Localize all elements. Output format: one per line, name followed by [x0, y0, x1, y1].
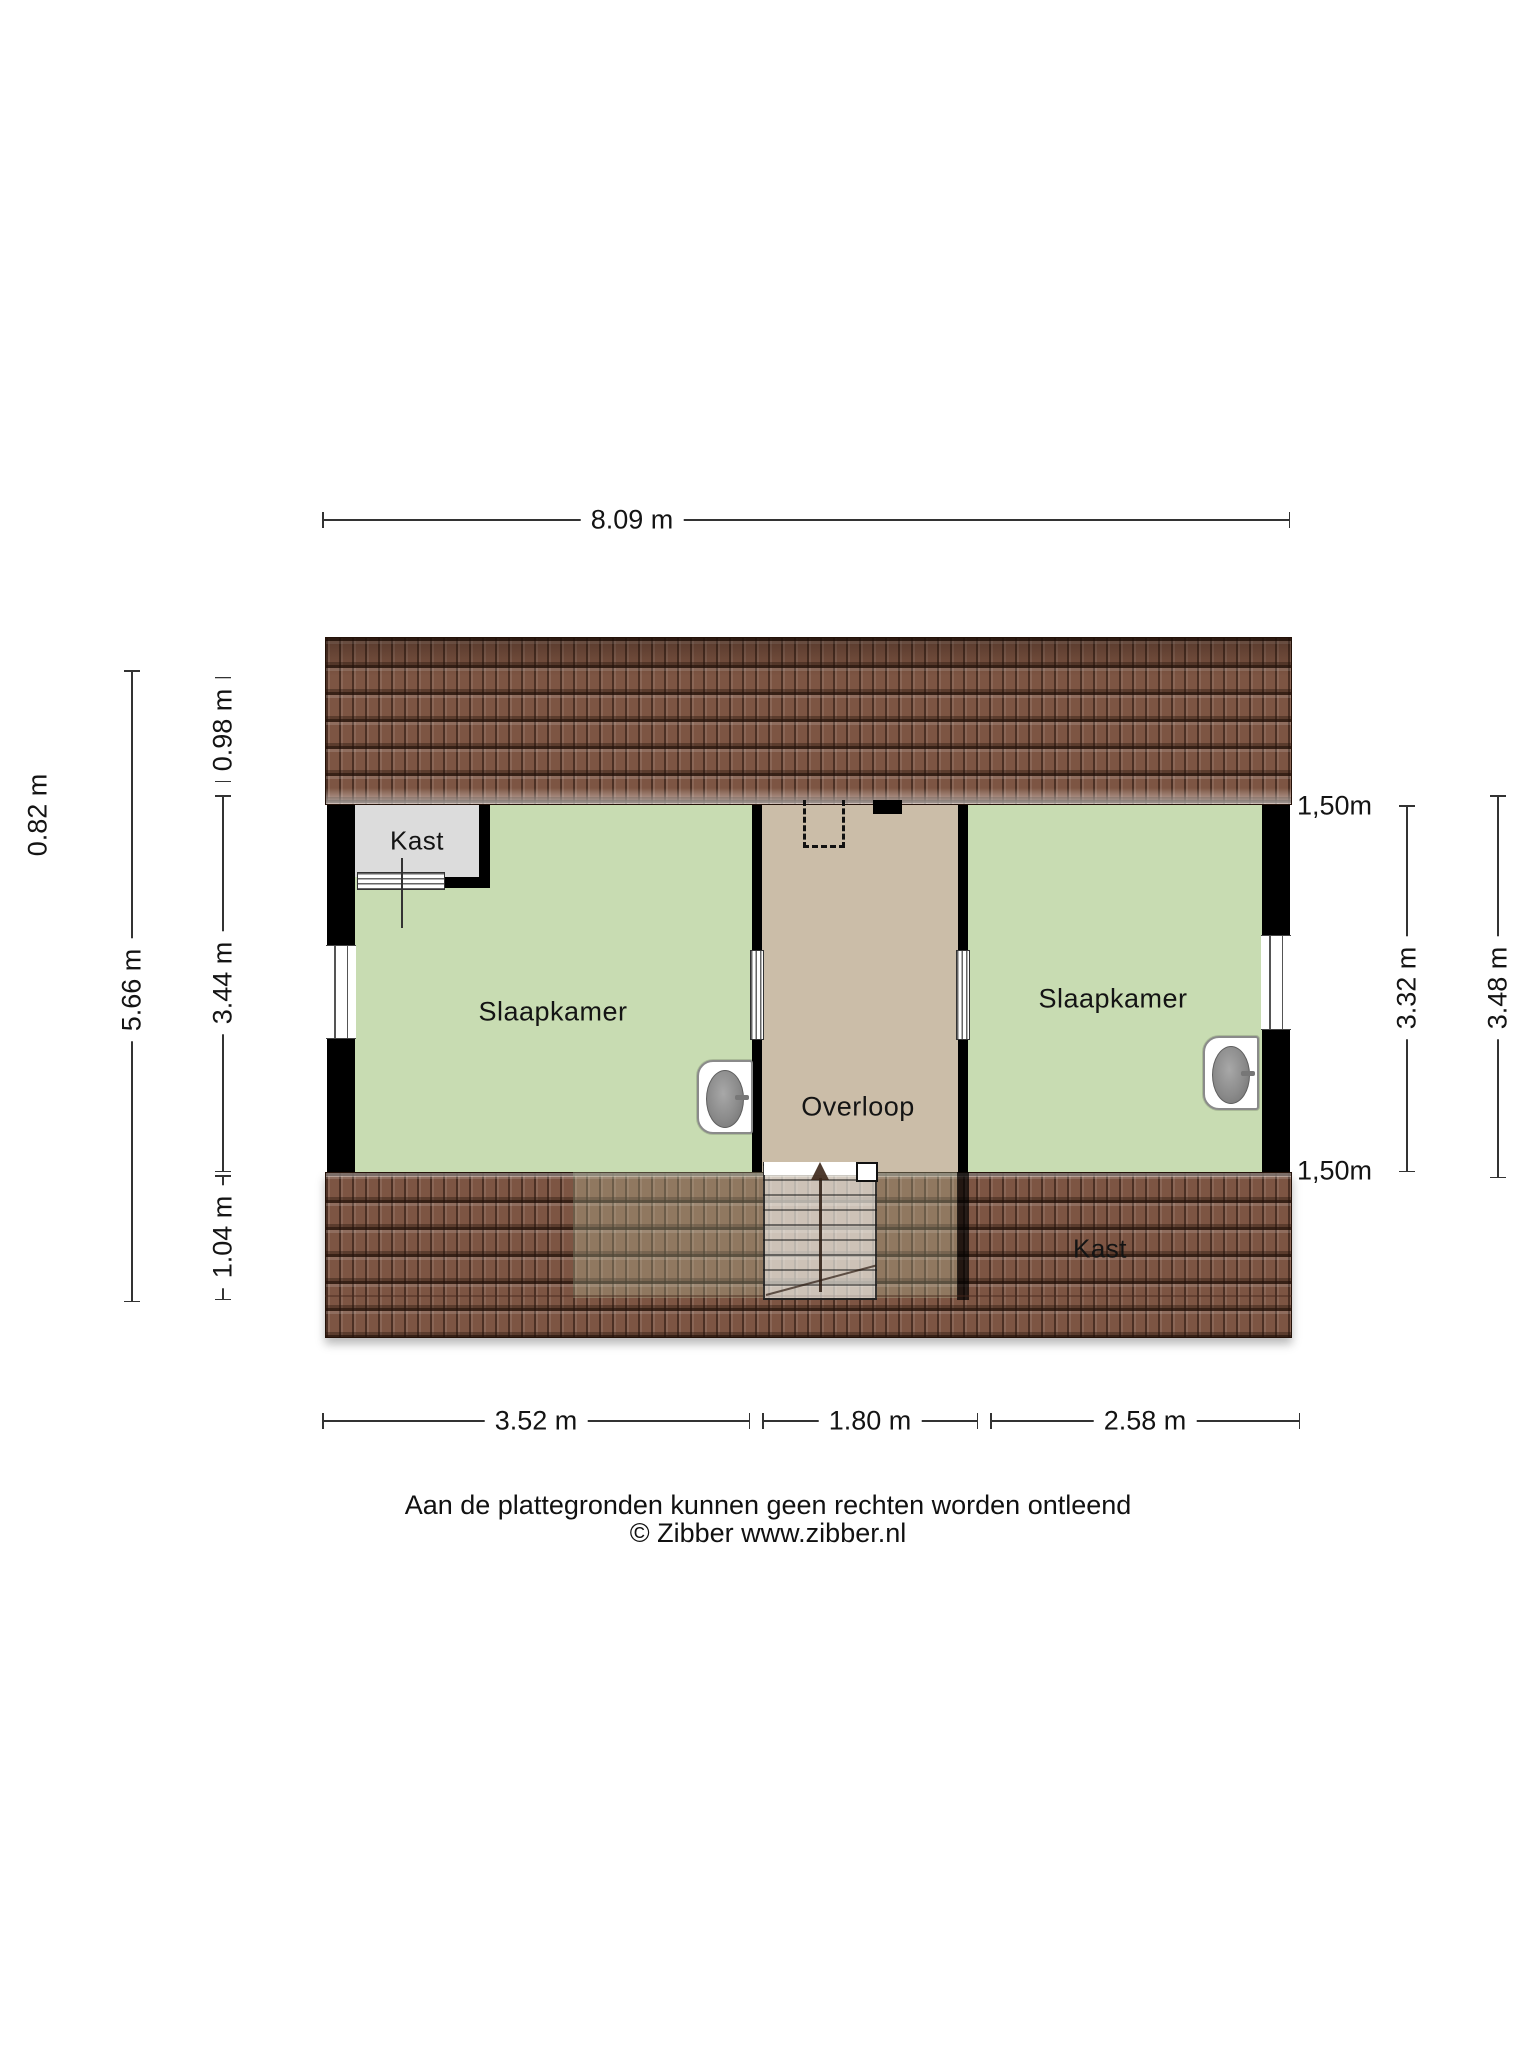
dimension-line-bottom-left: 3.52 m: [322, 1420, 750, 1422]
dimension-label-left-outer: 0.82 m: [23, 774, 54, 857]
dimension-line-left-middle: 3.44 m: [222, 795, 224, 1172]
stair-direction-line: [819, 1178, 822, 1292]
room-label-bedroom-right: Slaapkamer: [1038, 984, 1187, 1015]
staircase-landing-box: [856, 1162, 878, 1182]
wall-under-roof: [957, 1172, 969, 1300]
wall-right-lower: [1262, 1028, 1290, 1172]
wall-hallway-left-upper: [752, 805, 762, 950]
dimension-label-top-width: 8.09 m: [581, 505, 684, 536]
dimension-label-bottom-middle: 1.80 m: [819, 1406, 922, 1437]
wall-right-upper: [1262, 805, 1290, 937]
dimension-line-top-width: 8.09 m: [322, 519, 1290, 521]
wall-left-lower: [327, 1037, 355, 1172]
dimension-label-right-outer: 3.48 m: [1483, 937, 1514, 1040]
sink-icon: [697, 1060, 753, 1134]
sink-tap: [1241, 1071, 1255, 1076]
dimension-label-left-bottom: 1.04 m: [208, 1186, 239, 1289]
dimension-label-left-top: 0.98 m: [208, 679, 239, 782]
dimension-line-right-inner: 3.32 m: [1406, 805, 1408, 1172]
closet-door-indicator-line: [401, 858, 403, 928]
door-hallway-right: [956, 950, 970, 1040]
wall-closet-bottom: [443, 877, 490, 888]
wall-closet-right: [479, 805, 490, 888]
room-label-bedroom-left: Slaapkamer: [478, 997, 627, 1028]
door-hallway-left: [750, 950, 764, 1040]
wall-hallway-right-lower: [958, 1040, 968, 1172]
dimension-line-left-top: 0.98 m: [222, 677, 224, 782]
dimension-line-left-total: 5.66 m: [131, 670, 133, 1302]
headroom-label-top: 1,50m: [1297, 791, 1372, 822]
room-label-closet-bottom-right: Kast: [1073, 1234, 1127, 1265]
dimension-line-bottom-right: 2.58 m: [990, 1420, 1300, 1422]
sink-tap: [735, 1095, 749, 1100]
dimension-label-bottom-left: 3.52 m: [485, 1406, 588, 1437]
roof-band-top: [325, 637, 1292, 805]
dimension-line-bottom-middle: 1.80 m: [762, 1420, 978, 1422]
headroom-label-bottom: 1,50m: [1297, 1156, 1372, 1187]
stair-direction-arrow-icon: [811, 1162, 829, 1180]
dimension-line-right-outer: 3.48 m: [1497, 795, 1499, 1178]
floorplan-canvas: 8.09 m Kast Slaapkam: [0, 0, 1536, 2048]
dimension-label-left-middle: 3.44 m: [208, 932, 239, 1035]
sink-icon: [1203, 1036, 1259, 1110]
window-right: [1261, 935, 1291, 1030]
disclaimer-text: Aan de plattegronden kunnen geen rechten…: [405, 1490, 1132, 1521]
dimension-label-right-inner: 3.32 m: [1392, 937, 1423, 1040]
chimney: [873, 800, 902, 814]
wall-hallway-right-upper: [958, 805, 968, 950]
dimension-line-left-bottom: 1.04 m: [222, 1175, 224, 1300]
room-label-hallway: Overloop: [801, 1092, 915, 1123]
wall-hallway-left-lower: [752, 1040, 762, 1172]
room-label-closet-top-left: Kast: [390, 826, 444, 857]
dimension-label-left-total: 5.66 m: [117, 939, 148, 1042]
window-left: [326, 945, 356, 1039]
copyright-text: © Zibber www.zibber.nl: [630, 1518, 907, 1549]
skylight-dashed-outline: [803, 800, 845, 848]
wall-left-upper: [327, 805, 355, 947]
dimension-label-bottom-right: 2.58 m: [1094, 1406, 1197, 1437]
